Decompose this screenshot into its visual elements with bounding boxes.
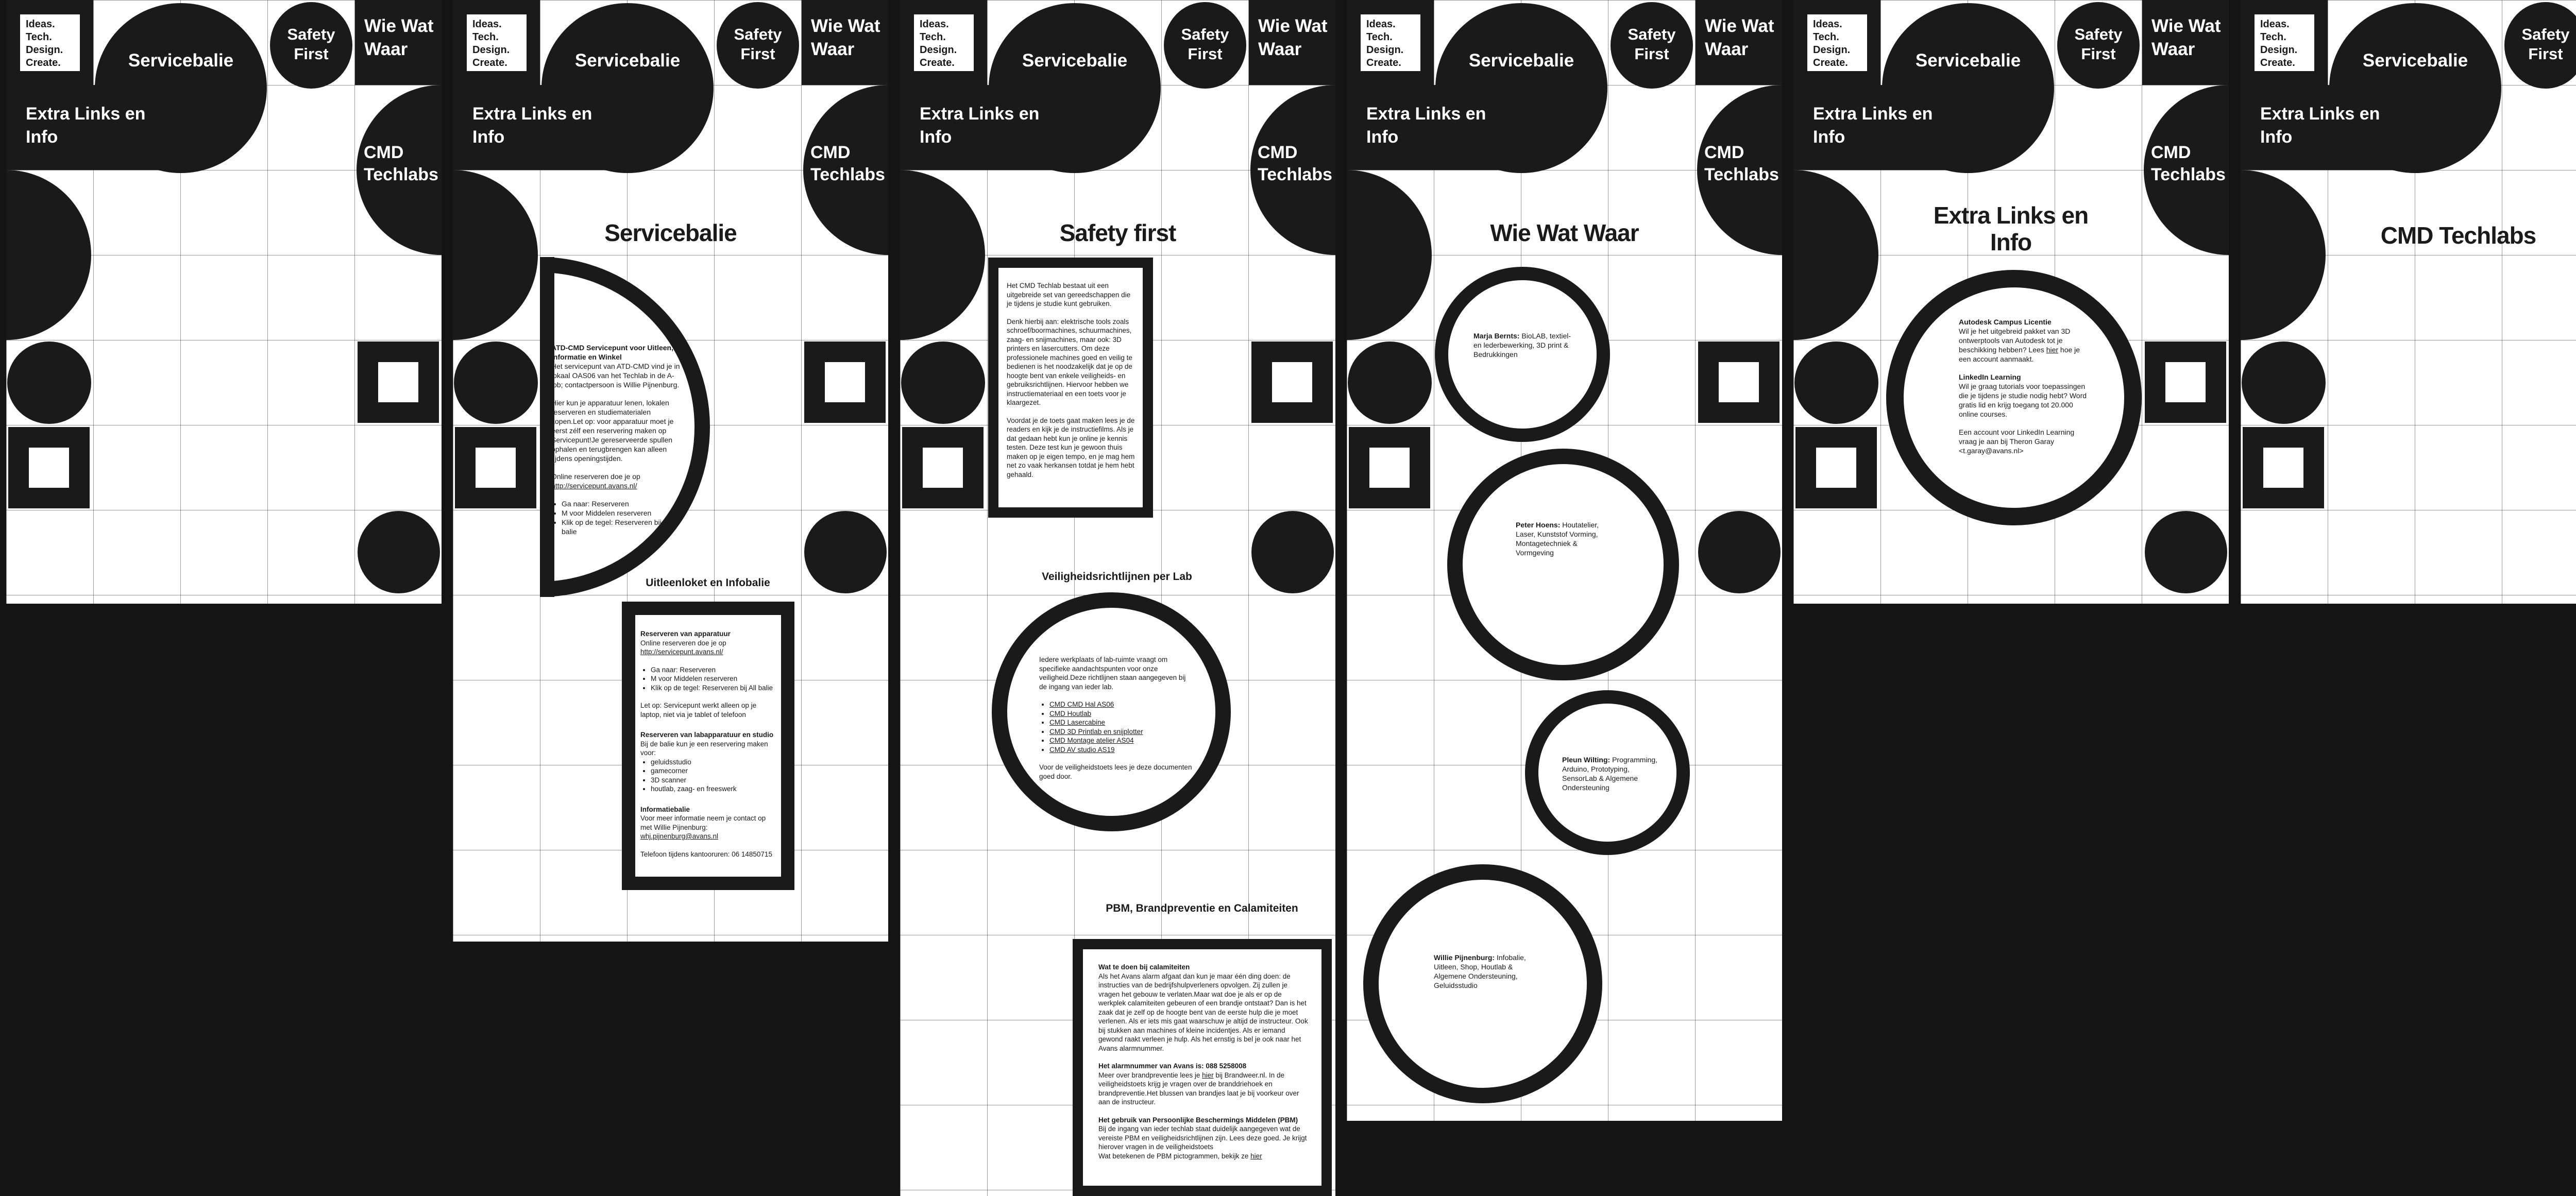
- decor-half-circle: [1347, 170, 1432, 340]
- logo-cell: Ideas. Tech. Design. Create.: [453, 0, 540, 85]
- logo-line: Tech.: [1366, 31, 1420, 44]
- nav-wie-wat-waar-label: Wie Wat Waar: [364, 16, 434, 59]
- lab-link[interactable]: CMD CMD Hal AS06: [1049, 700, 1114, 708]
- paragraph: Wil je het uitgebreid pakket van 3D ontw…: [1959, 327, 2092, 364]
- decor-square-outline: [1251, 341, 1333, 423]
- logo-line: Ideas.: [1813, 18, 1867, 31]
- nav-safety-first[interactable]: Safety First: [1164, 2, 1246, 89]
- decor-circle: [1251, 511, 1334, 593]
- logo-line: Ideas.: [472, 18, 527, 31]
- list-item: gamecorner: [651, 766, 777, 776]
- brandweer-link[interactable]: hier: [1202, 1071, 1214, 1079]
- nav-extra-links-label: Extra Links en Info: [472, 104, 592, 147]
- list-item: M voor Middelen reserveren: [562, 508, 681, 518]
- box-heading: Reserveren van labapparatuur en studio: [640, 730, 777, 740]
- logo-line: Ideas.: [1366, 18, 1420, 31]
- calamiteiten-box: Wat te doen bij calamiteiten Als het Ava…: [1073, 939, 1332, 1196]
- nav-wie-wat-waar-label: Wie Wat Waar: [1258, 16, 1328, 59]
- nav-extra-links[interactable]: Extra Links en Info: [1793, 85, 1968, 170]
- decor-circle: [7, 341, 91, 424]
- paragraph: Online reserveren doe je op http://servi…: [551, 472, 681, 490]
- nav-cmd-techlabs-label: CMD Techlabs: [364, 142, 442, 186]
- list-item: 3D scanner: [651, 776, 777, 785]
- page-servicebalie: Ideas. Tech. Design. Create. Servicebali…: [453, 0, 888, 942]
- logo-line: Ideas.: [920, 18, 974, 31]
- logo-cell: Ideas. Tech. Design. Create.: [1793, 0, 1880, 85]
- nav-safety-first-label: Safety First: [1181, 25, 1229, 63]
- servicepunt-heading: ATD-CMD Servicepunt voor Uitleen, Inform…: [551, 343, 681, 362]
- autodesk-heading: Autodesk Campus Licentie: [1959, 317, 2092, 327]
- autodesk-link[interactable]: hier: [2046, 346, 2058, 354]
- person-text: Pleun Wilting: Programming, Arduino, Pro…: [1562, 755, 1659, 792]
- decor-circle: [901, 341, 985, 424]
- techlab-intro-box: Het CMD Techlab bestaat uit een uitgebre…: [988, 258, 1153, 518]
- lab-link-item: CMD Houtlab: [1049, 709, 1195, 719]
- nav-extra-links[interactable]: Extra Links en Info: [6, 85, 181, 170]
- lab-link[interactable]: CMD AV studio AS19: [1049, 746, 1115, 754]
- nav-cmd-techlabs[interactable]: CMD Techlabs: [2144, 85, 2229, 255]
- person-circle-peter: [1447, 449, 1679, 680]
- lab-link[interactable]: CMD Lasercabine: [1049, 719, 1105, 726]
- paragraph: Iedere werkplaats of lab-ruimte vraagt o…: [1039, 655, 1195, 691]
- nav-cmd-techlabs[interactable]: CMD Techlabs: [357, 85, 442, 255]
- decor-circle: [358, 511, 440, 593]
- logo-cell: Ideas. Tech. Design. Create.: [2241, 0, 2328, 85]
- nav-extra-links-label: Extra Links en Info: [1366, 104, 1486, 147]
- nav-extra-links[interactable]: Extra Links en Info: [453, 85, 628, 170]
- text: Online reserveren doe je op: [551, 472, 640, 481]
- box-heading: Het alarmnummer van Avans is: 088 525800…: [1098, 1062, 1309, 1071]
- page-wie-wat-waar: Ideas. Tech. Design. Create. Servicebali…: [1347, 0, 1782, 1121]
- box-heading: Wat te doen bij calamiteiten: [1098, 963, 1309, 972]
- nav-safety-first-label: Safety First: [2074, 25, 2122, 63]
- decor-circle: [1698, 511, 1781, 593]
- nav-safety-first-label: Safety First: [287, 25, 335, 63]
- linkedin-heading: LinkedIn Learning: [1959, 372, 2092, 382]
- person-text: Willie Pijnenburg: Infobalie, Uitleen, S…: [1434, 953, 1528, 990]
- servicepunt-info-text: ATD-CMD Servicepunt voor Uitleen, Inform…: [551, 343, 681, 545]
- person-text: Marja Bernts: BioLAB, textiel- en lederb…: [1473, 331, 1574, 359]
- decor-circle: [804, 511, 887, 593]
- section-heading-pbm: PBM, Brandpreventie en Calamiteiten: [1099, 902, 1305, 915]
- page-extra-links: Ideas. Tech. Design. Create. Servicebali…: [1793, 0, 2229, 604]
- paragraph: Telefoon tijdens kantooruren: 06 1485071…: [640, 850, 777, 859]
- lab-links-list: CMD CMD Hal AS06 CMD Houtlab CMD Laserca…: [1039, 700, 1195, 754]
- uitleenloket-box: Reserveren van apparatuur Online reserve…: [622, 602, 794, 890]
- decor-square-outline: [455, 427, 536, 508]
- nav-servicebalie-label: Servicebalie: [541, 50, 714, 71]
- list-item: Klik op de tegel: Reserveren bij All bal…: [651, 684, 777, 693]
- logo-home-link[interactable]: Ideas. Tech. Design. Create.: [1361, 14, 1420, 71]
- nav-safety-first-label: Safety First: [2521, 25, 2569, 63]
- nav-safety-first-label: Safety First: [1628, 25, 1675, 63]
- person-name: Willie Pijnenburg:: [1434, 953, 1495, 962]
- logo-line: Create.: [1813, 57, 1867, 70]
- list-item: Ga naar: Reserveren: [651, 665, 777, 675]
- person-name: Peter Hoens:: [1516, 521, 1560, 529]
- page-home: Ideas. Tech. Design. Create. Servicebali…: [6, 0, 442, 604]
- nav-servicebalie-label: Servicebalie: [2329, 50, 2501, 71]
- logo-home-link[interactable]: Ideas. Tech. Design. Create.: [20, 14, 80, 71]
- logo-line: Tech.: [1813, 31, 1867, 44]
- decor-square-outline: [2145, 341, 2226, 423]
- nav-wie-wat-waar-label: Wie Wat Waar: [2151, 16, 2221, 59]
- nav-safety-first[interactable]: Safety First: [1611, 2, 1693, 89]
- section-heading-veiligheidsrichtlijnen: Veiligheidsrichtlijnen per Lab: [1009, 571, 1225, 583]
- decor-half-circle: [6, 170, 91, 340]
- nav-extra-links-label: Extra Links en Info: [26, 104, 145, 147]
- decor-half-circle: [453, 170, 538, 340]
- reserveren-steps: Ga naar: Reserveren M voor Middelen rese…: [551, 499, 681, 536]
- logo-home-link[interactable]: Ideas. Tech. Design. Create.: [467, 14, 527, 71]
- decor-circle: [454, 341, 538, 424]
- paragraph: Wat betekenen de PBM pictogrammen, bekij…: [1098, 1152, 1309, 1161]
- nav-wie-wat-waar-label: Wie Wat Waar: [811, 16, 880, 59]
- veiligheid-circle-text: Iedere werkplaats of lab-ruimte vraagt o…: [1039, 655, 1195, 781]
- nav-servicebalie-label: Servicebalie: [1882, 50, 2054, 71]
- logo-line: Design.: [2260, 44, 2314, 57]
- page-title: CMD Techlabs: [2241, 221, 2576, 249]
- nav-extra-links[interactable]: Extra Links en Info: [1347, 85, 1521, 170]
- decor-square-outline: [902, 427, 984, 508]
- email-link[interactable]: whj.pijnenburg@avans.nl: [640, 832, 777, 841]
- nav-extra-links[interactable]: Extra Links en Info: [2241, 85, 2415, 170]
- logo-line: Create.: [26, 57, 80, 70]
- nav-extra-links[interactable]: Extra Links en Info: [900, 85, 1075, 170]
- nav-safety-first-label: Safety First: [734, 25, 782, 63]
- logo-line: Tech.: [2260, 31, 2314, 44]
- paragraph: Meer over brandpreventie lees je hier bi…: [1098, 1071, 1309, 1107]
- lab-link[interactable]: CMD Montage atelier AS04: [1049, 737, 1134, 744]
- logo-line: Create.: [2260, 57, 2314, 70]
- logo-home-link[interactable]: Ideas. Tech. Design. Create.: [1807, 14, 1867, 71]
- logo-home-link[interactable]: Ideas. Tech. Design. Create.: [914, 14, 974, 71]
- logo-line: Design.: [1366, 44, 1420, 57]
- lab-link-item: CMD 3D Printlab en snijplotter: [1049, 727, 1195, 737]
- paragraph: Voordat je de toets gaat maken lees je d…: [1007, 416, 1136, 480]
- nav-wie-wat-waar[interactable]: Wie Wat Waar: [802, 0, 888, 85]
- box-heading: Reserveren van apparatuur: [640, 629, 777, 639]
- person-name: Marja Bernts:: [1473, 332, 1519, 340]
- decor-square-outline: [358, 341, 439, 423]
- nav-servicebalie-label: Servicebalie: [989, 50, 1161, 71]
- decor-half-circle: [1793, 170, 1878, 340]
- paragraph: Het CMD Techlab bestaat uit een uitgebre…: [1007, 281, 1136, 309]
- paragraph: Voor de veiligheidstoets lees je deze do…: [1039, 763, 1195, 781]
- decor-half-circle: [900, 170, 985, 340]
- logo-line: Design.: [1813, 44, 1867, 57]
- lab-link-item: CMD Montage atelier AS04: [1049, 736, 1195, 745]
- pbm-pictogrammen-link[interactable]: hier: [1250, 1152, 1262, 1160]
- nav-wie-wat-waar[interactable]: Wie Wat Waar: [2142, 0, 2229, 85]
- reserveren-steps: Ga naar: Reserveren M voor Middelen rese…: [640, 665, 777, 693]
- nav-cmd-techlabs-label: CMD Techlabs: [810, 142, 888, 186]
- paragraph: Het servicepunt van ATD-CMD vind je in l…: [551, 362, 681, 389]
- page-cmd-techlabs: Ideas. Tech. Design. Create. Servicebali…: [2241, 0, 2576, 604]
- nav-cmd-techlabs-label: CMD Techlabs: [1704, 142, 1782, 186]
- paragraph: Een account voor LinkedIn Learning vraag…: [1959, 428, 2092, 455]
- nav-safety-first[interactable]: Safety First: [270, 2, 352, 89]
- nav-wie-wat-waar-label: Wie Wat Waar: [1705, 16, 1774, 59]
- logo-home-link[interactable]: Ideas. Tech. Design. Create.: [2255, 14, 2314, 71]
- paragraph: Bij de ingang van ieder techlab staat du…: [1098, 1124, 1309, 1152]
- paragraph: Bij de balie kun je een reservering make…: [640, 740, 777, 758]
- paragraph: Denk hierbij aan: elektrische tools zoal…: [1007, 317, 1136, 407]
- list-item: Ga naar: Reserveren: [562, 499, 681, 508]
- decor-circle: [1794, 341, 1878, 424]
- logo-line: Ideas.: [26, 18, 80, 31]
- nav-wie-wat-waar[interactable]: Wie Wat Waar: [355, 0, 442, 85]
- nav-servicebalie-label: Servicebalie: [1435, 50, 1607, 71]
- logo-cell: Ideas. Tech. Design. Create.: [6, 0, 93, 85]
- decor-circle: [1348, 341, 1432, 424]
- nav-extra-links-label: Extra Links en Info: [1813, 104, 1933, 147]
- page-title: Safety first: [900, 219, 1335, 247]
- page-title: Servicebalie: [453, 219, 888, 247]
- logo-cell: Ideas. Tech. Design. Create.: [1347, 0, 1434, 85]
- list-item: M voor Middelen reserveren: [651, 674, 777, 684]
- lab-link[interactable]: CMD Houtlab: [1049, 710, 1091, 717]
- nav-safety-first[interactable]: Safety First: [2057, 2, 2140, 89]
- nav-safety-first[interactable]: Safety First: [717, 2, 799, 89]
- page-title: Extra Links en Info: [1918, 202, 2104, 255]
- text: Meer over brandpreventie lees je: [1098, 1071, 1202, 1079]
- list-item: Klik op de tegel: Reserveren bij CMD bal…: [562, 518, 681, 536]
- nav-wie-wat-waar[interactable]: Wie Wat Waar: [1696, 0, 1782, 85]
- lab-list: geluidsstudio gamecorner 3D scanner hout…: [640, 758, 777, 794]
- decor-square-outline: [8, 427, 90, 508]
- servicepunt-link[interactable]: http://servicepunt.avans.nl/: [640, 648, 723, 656]
- servicepunt-link[interactable]: http://servicepunt.avans.nl/: [551, 482, 637, 490]
- box-heading: Het gebruik van Persoonlijke Bescherming…: [1098, 1116, 1309, 1125]
- logo-line: Create.: [920, 57, 974, 70]
- list-item: houtlab, zaag- en freeswerk: [651, 784, 777, 794]
- page-title: Wie Wat Waar: [1347, 219, 1782, 247]
- decor-square-outline: [2243, 427, 2324, 508]
- paragraph: Hier kun je apparatuur lenen, lokalen re…: [551, 398, 681, 463]
- nav-extra-links-label: Extra Links en Info: [920, 104, 1039, 147]
- text: Wat betekenen de PBM pictogrammen, bekij…: [1098, 1152, 1250, 1160]
- decor-square-outline: [804, 341, 886, 423]
- logo-line: Tech.: [26, 31, 80, 44]
- paragraph: Let op: Servicepunt werkt alleen op je l…: [640, 701, 777, 719]
- box-heading: Informatiebalie: [640, 805, 777, 814]
- decor-square-outline: [1795, 427, 1877, 508]
- section-heading-uitleenloket: Uitleenloket en Infobalie: [605, 577, 811, 589]
- paragraph: Voor meer informatie neem je contact op …: [640, 814, 777, 832]
- decor-square-outline: [1698, 341, 1780, 423]
- nav-cmd-techlabs-label: CMD Techlabs: [1258, 142, 1335, 186]
- lab-link-item: CMD Lasercabine: [1049, 718, 1195, 727]
- decor-circle: [2242, 341, 2326, 424]
- paragraph: Als het Avans alarm afgaat dan kun je ma…: [1098, 972, 1309, 1053]
- logo-line: Tech.: [472, 31, 527, 44]
- nav-safety-first[interactable]: Safety First: [2504, 2, 2576, 89]
- logo-cell: Ideas. Tech. Design. Create.: [900, 0, 987, 85]
- lab-link-item: CMD AV studio AS19: [1049, 745, 1195, 755]
- logo-line: Tech.: [920, 31, 974, 44]
- logo-line: Create.: [472, 57, 527, 70]
- logo-line: Design.: [920, 44, 974, 57]
- text: Online reserveren doe je op: [640, 639, 726, 647]
- nav-wie-wat-waar[interactable]: Wie Wat Waar: [1249, 0, 1335, 85]
- decor-half-circle: [2241, 170, 2326, 340]
- nav-servicebalie-label: Servicebalie: [95, 50, 267, 71]
- decor-circle: [2145, 511, 2227, 593]
- lab-link-item: CMD CMD Hal AS06: [1049, 700, 1195, 709]
- logo-line: Create.: [1366, 57, 1420, 70]
- person-text: Peter Hoens: Houtatelier, Laser, Kunstst…: [1516, 520, 1607, 557]
- logo-line: Design.: [472, 44, 527, 57]
- list-item: geluidsstudio: [651, 758, 777, 767]
- person-name: Pleun Wilting:: [1562, 756, 1610, 764]
- paragraph: Online reserveren doe je op http://servi…: [640, 639, 777, 657]
- paragraph: Wil je graag tutorials voor toepassingen…: [1959, 382, 2092, 419]
- logo-line: Ideas.: [2260, 18, 2314, 31]
- extra-links-circle-text: Autodesk Campus Licentie Wil je het uitg…: [1959, 317, 2092, 455]
- nav-cmd-techlabs-label: CMD Techlabs: [2151, 142, 2229, 186]
- lab-link[interactable]: CMD 3D Printlab en snijplotter: [1049, 728, 1143, 736]
- decor-square-outline: [1349, 427, 1430, 508]
- page-safety-first: Ideas. Tech. Design. Create. Servicebali…: [900, 0, 1335, 1196]
- logo-line: Design.: [26, 44, 80, 57]
- nav-extra-links-label: Extra Links en Info: [2260, 104, 2380, 147]
